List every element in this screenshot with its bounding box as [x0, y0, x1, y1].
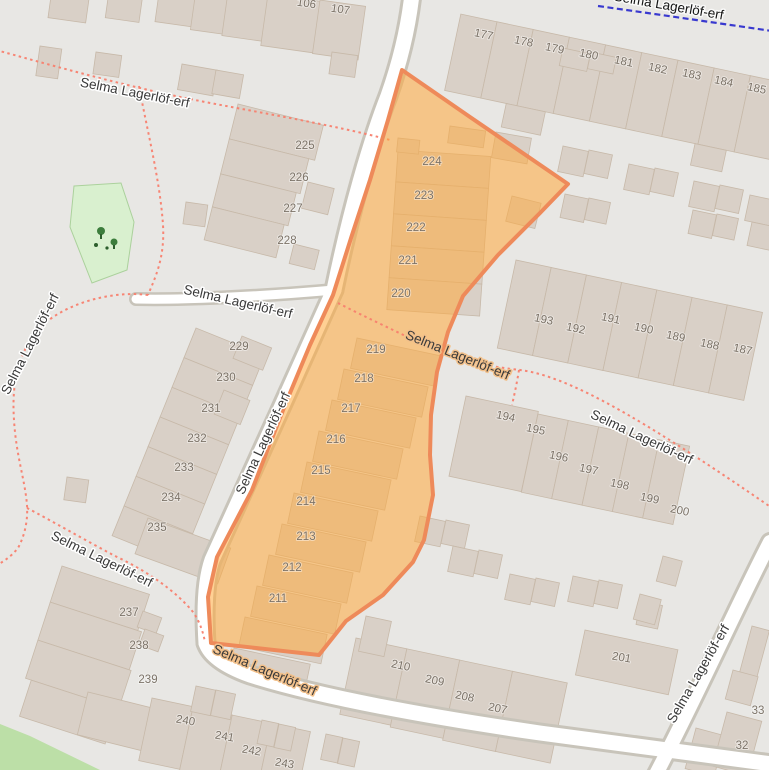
house-number-label: 217 [341, 403, 360, 415]
house-number-label: 235 [147, 522, 166, 534]
house-number-label: 232 [187, 433, 206, 445]
building [650, 168, 678, 196]
house-number-label: 229 [229, 341, 248, 353]
house-number-label: 211 [269, 593, 287, 605]
house-number-label: 32 [736, 740, 749, 752]
house-number-label: 33 [752, 705, 765, 717]
house-number-label: 218 [354, 373, 373, 385]
building [568, 576, 599, 607]
house-number-label: 224 [422, 156, 442, 168]
building [441, 520, 469, 548]
building [36, 46, 62, 79]
house-number-label: 238 [129, 640, 148, 652]
house-number-label: 233 [174, 462, 193, 474]
building [584, 198, 610, 224]
building [688, 210, 716, 238]
house-number-label: 228 [277, 235, 296, 247]
building [584, 150, 612, 178]
house-number-label: 239 [138, 674, 157, 686]
building [624, 164, 655, 195]
building [594, 580, 622, 608]
house-number-label: 227 [283, 203, 302, 215]
house-number-label: 222 [406, 222, 425, 234]
building [560, 194, 588, 222]
house-number-label: 213 [296, 531, 315, 543]
building [531, 578, 559, 606]
building [505, 574, 536, 605]
building [689, 181, 720, 212]
house-number-label: 214 [296, 496, 316, 508]
house-number-label: 223 [414, 190, 433, 202]
house-number-label: 234 [161, 492, 181, 504]
building [715, 185, 743, 213]
house-number-label: 226 [289, 172, 308, 184]
house-number-label: 243 [274, 756, 295, 770]
house-number-label: 216 [326, 434, 345, 446]
building [448, 546, 479, 577]
building [329, 52, 358, 77]
map-canvas[interactable]: 1061071771781791801811821831841852252262… [0, 0, 769, 770]
building [93, 52, 122, 77]
building [301, 182, 334, 215]
house-number-label: 219 [366, 344, 385, 356]
house-number-label: 230 [216, 372, 235, 384]
building [212, 70, 244, 98]
house-number-label: 212 [282, 562, 301, 574]
house-number-label: 237 [119, 607, 138, 619]
building [712, 214, 738, 240]
map-viewport[interactable]: 1061071771781791801811821831841852252262… [0, 0, 769, 770]
house-number-label: 220 [391, 288, 410, 300]
building [183, 202, 208, 227]
building [64, 477, 89, 503]
house-number-label: 225 [295, 140, 314, 152]
house-number-label: 231 [201, 403, 220, 415]
house-number-label: 221 [398, 255, 417, 267]
building [558, 146, 589, 177]
house-number-label: 215 [311, 465, 330, 477]
building [474, 550, 502, 578]
